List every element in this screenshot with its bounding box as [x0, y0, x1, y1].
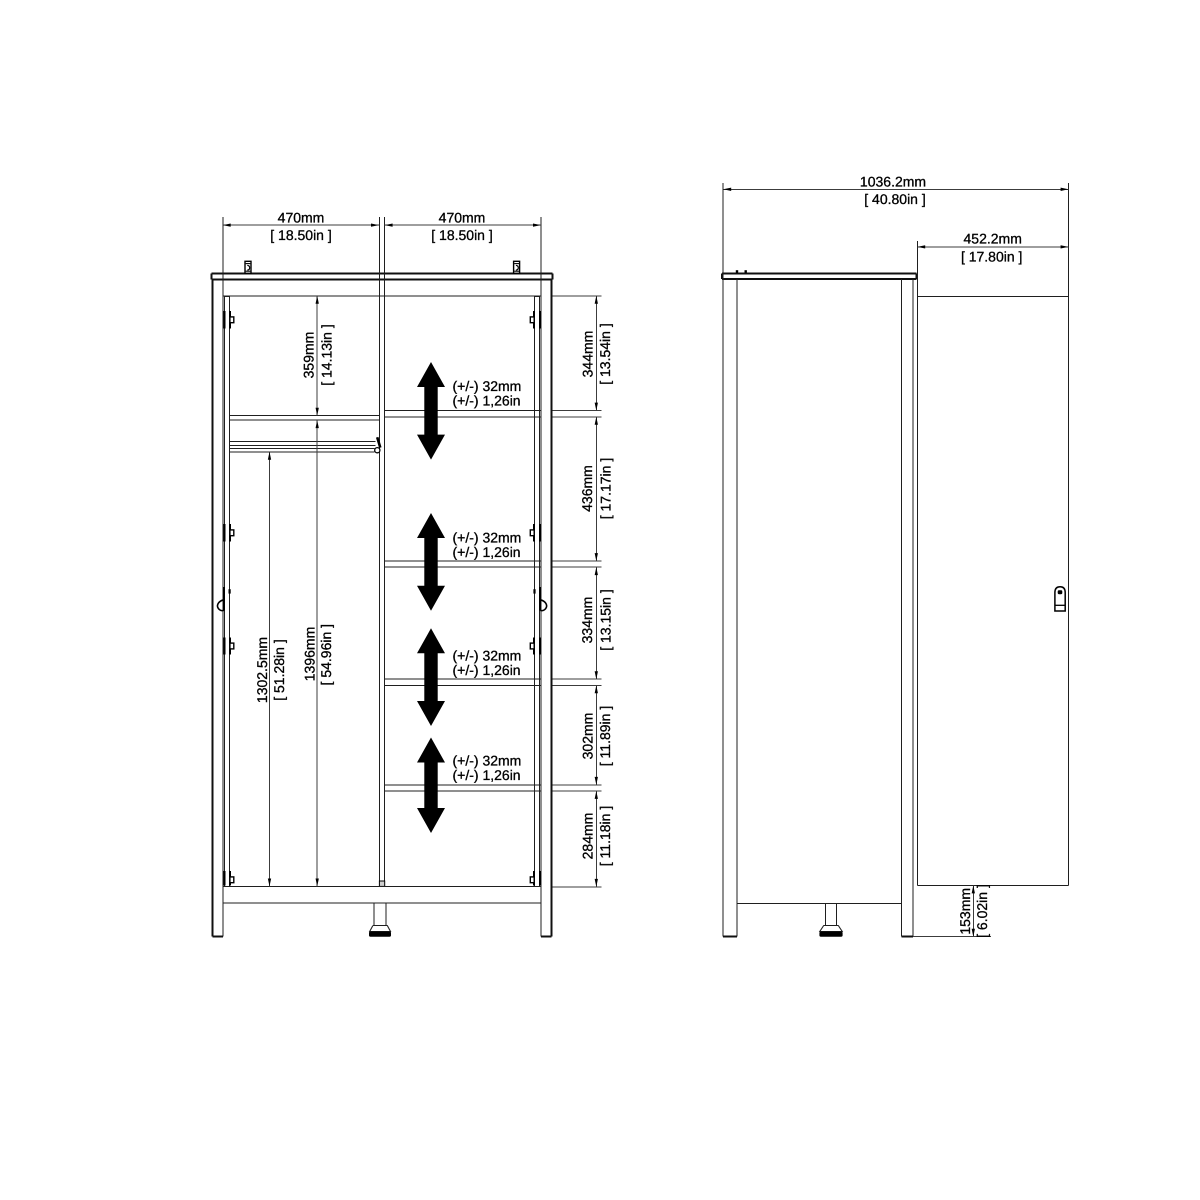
svg-text:[ 51.28in ]: [ 51.28in ]	[271, 639, 287, 701]
svg-text:302mm: 302mm	[580, 713, 596, 760]
svg-text:(+/-) 32mm: (+/-) 32mm	[453, 753, 522, 769]
svg-text:[ 17.80in ]: [ 17.80in ]	[961, 249, 1023, 265]
svg-text:334mm: 334mm	[579, 597, 595, 644]
svg-text:[ 6.02in ]: [ 6.02in ]	[974, 884, 990, 938]
svg-text:153mm: 153mm	[957, 888, 973, 935]
svg-text:470mm: 470mm	[439, 209, 486, 225]
svg-text:[ 14.13in ]: [ 14.13in ]	[319, 324, 335, 386]
svg-text:(+/-) 32mm: (+/-) 32mm	[453, 648, 522, 664]
svg-text:(+/-) 32mm: (+/-) 32mm	[453, 378, 522, 394]
svg-text:(+/-) 1,26in: (+/-) 1,26in	[453, 662, 521, 678]
svg-text:452.2mm: 452.2mm	[964, 231, 1022, 247]
svg-text:(+/-) 1,26in: (+/-) 1,26in	[453, 544, 521, 560]
svg-text:[ 13.15in ]: [ 13.15in ]	[598, 589, 614, 651]
svg-text:(+/-) 1,26in: (+/-) 1,26in	[453, 767, 521, 783]
svg-text:470mm: 470mm	[278, 209, 325, 225]
svg-text:(+/-) 32mm: (+/-) 32mm	[453, 529, 522, 545]
svg-text:[ 11.89in ]: [ 11.89in ]	[597, 706, 613, 766]
svg-text:(+/-) 1,26in: (+/-) 1,26in	[453, 393, 521, 409]
svg-text:1396mm: 1396mm	[301, 627, 317, 681]
svg-text:[ 18.50in ]: [ 18.50in ]	[431, 227, 493, 243]
svg-text:436mm: 436mm	[579, 465, 595, 512]
svg-text:344mm: 344mm	[580, 331, 596, 378]
svg-text:[ 17.17in ]: [ 17.17in ]	[598, 458, 614, 520]
svg-text:[ 13.54in ]: [ 13.54in ]	[597, 323, 613, 385]
svg-text:1302.5mm: 1302.5mm	[254, 637, 270, 703]
svg-text:[ 40.80in ]: [ 40.80in ]	[864, 191, 926, 207]
svg-text:284mm: 284mm	[580, 813, 596, 860]
svg-text:359mm: 359mm	[301, 332, 317, 379]
svg-text:1036.2mm: 1036.2mm	[860, 174, 926, 190]
svg-text:[ 11.18in ]: [ 11.18in ]	[597, 806, 613, 866]
svg-text:[ 18.50in ]: [ 18.50in ]	[270, 227, 332, 243]
svg-text:[ 54.96in ]: [ 54.96in ]	[318, 624, 334, 686]
